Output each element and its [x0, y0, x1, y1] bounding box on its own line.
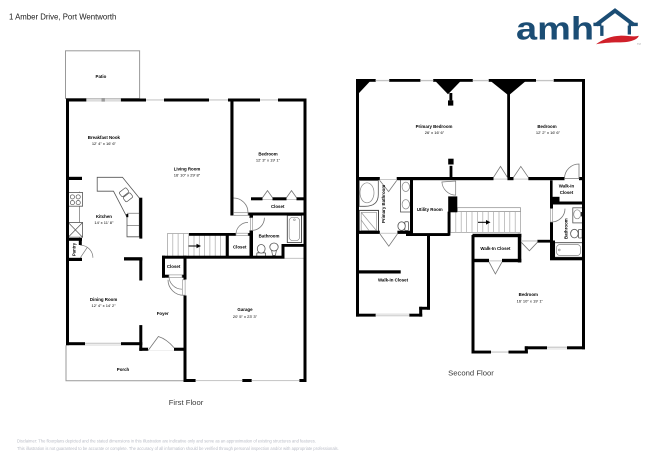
svg-text:amh: amh [516, 11, 594, 47]
svg-text:12' 4" x 16' 6": 12' 4" x 16' 6" [92, 141, 117, 146]
svg-text:16' 10" x 29' 8": 16' 10" x 29' 8" [174, 172, 201, 177]
svg-text:Walk-In Closet: Walk-In Closet [480, 246, 511, 251]
svg-text:Porch: Porch [117, 367, 130, 372]
svg-text:Utility Room: Utility Room [417, 207, 443, 212]
svg-text:Bathroom: Bathroom [259, 234, 280, 239]
svg-text:Walk-In Closet: Walk-In Closet [378, 277, 409, 282]
svg-text:Closet: Closet [167, 264, 181, 269]
svg-text:TM: TM [637, 42, 641, 46]
svg-text:Closet: Closet [271, 204, 285, 209]
svg-text:Primary Bathroom: Primary Bathroom [381, 185, 386, 223]
svg-text:Closet: Closet [560, 190, 574, 195]
svg-text:Primary Bedroom: Primary Bedroom [416, 124, 453, 129]
svg-text:Kitchen: Kitchen [96, 214, 112, 219]
svg-text:12' 3" x 19' 1": 12' 3" x 19' 1" [256, 158, 281, 163]
svg-text:Bedroom: Bedroom [519, 292, 538, 297]
svg-text:Foyer: Foyer [157, 311, 169, 316]
svg-text:1 Amber Drive, Port Wentworth: 1 Amber Drive, Port Wentworth [9, 12, 116, 21]
svg-text:12' 4" x 14' 2": 12' 4" x 14' 2" [92, 303, 117, 308]
svg-text:Pantry: Pantry [72, 242, 77, 256]
svg-text:First Floor: First Floor [169, 398, 204, 407]
svg-text:Living Room: Living Room [174, 166, 201, 171]
svg-text:16' 10" x 19' 1": 16' 10" x 19' 1" [517, 298, 544, 303]
svg-text:20' 5" x 23' 3": 20' 5" x 23' 3" [233, 314, 258, 319]
svg-text:Bedroom: Bedroom [258, 152, 277, 157]
svg-text:Second Floor: Second Floor [448, 369, 494, 378]
svg-text:14' x 11' 8": 14' x 11' 8" [94, 220, 114, 225]
svg-text:Bathroom: Bathroom [563, 218, 568, 239]
svg-text:Patio: Patio [96, 74, 107, 79]
svg-text:12' 2" x 16' 6": 12' 2" x 16' 6" [536, 130, 561, 135]
svg-text:This illustration is not guara: This illustration is not guaranteed to b… [17, 446, 339, 451]
svg-text:Disclaimer: The floorplans dep: Disclaimer: The floorplans depicted and … [17, 439, 316, 444]
svg-text:Closet: Closet [233, 244, 247, 249]
svg-text:Breakfast Nook: Breakfast Nook [88, 135, 121, 140]
svg-text:Walk-In: Walk-In [559, 184, 575, 189]
svg-text:Bedroom: Bedroom [537, 124, 556, 129]
svg-text:Garage: Garage [237, 307, 253, 312]
svg-text:26' x 16' 6": 26' x 16' 6" [425, 130, 445, 135]
svg-text:Dining Room: Dining Room [90, 297, 117, 302]
